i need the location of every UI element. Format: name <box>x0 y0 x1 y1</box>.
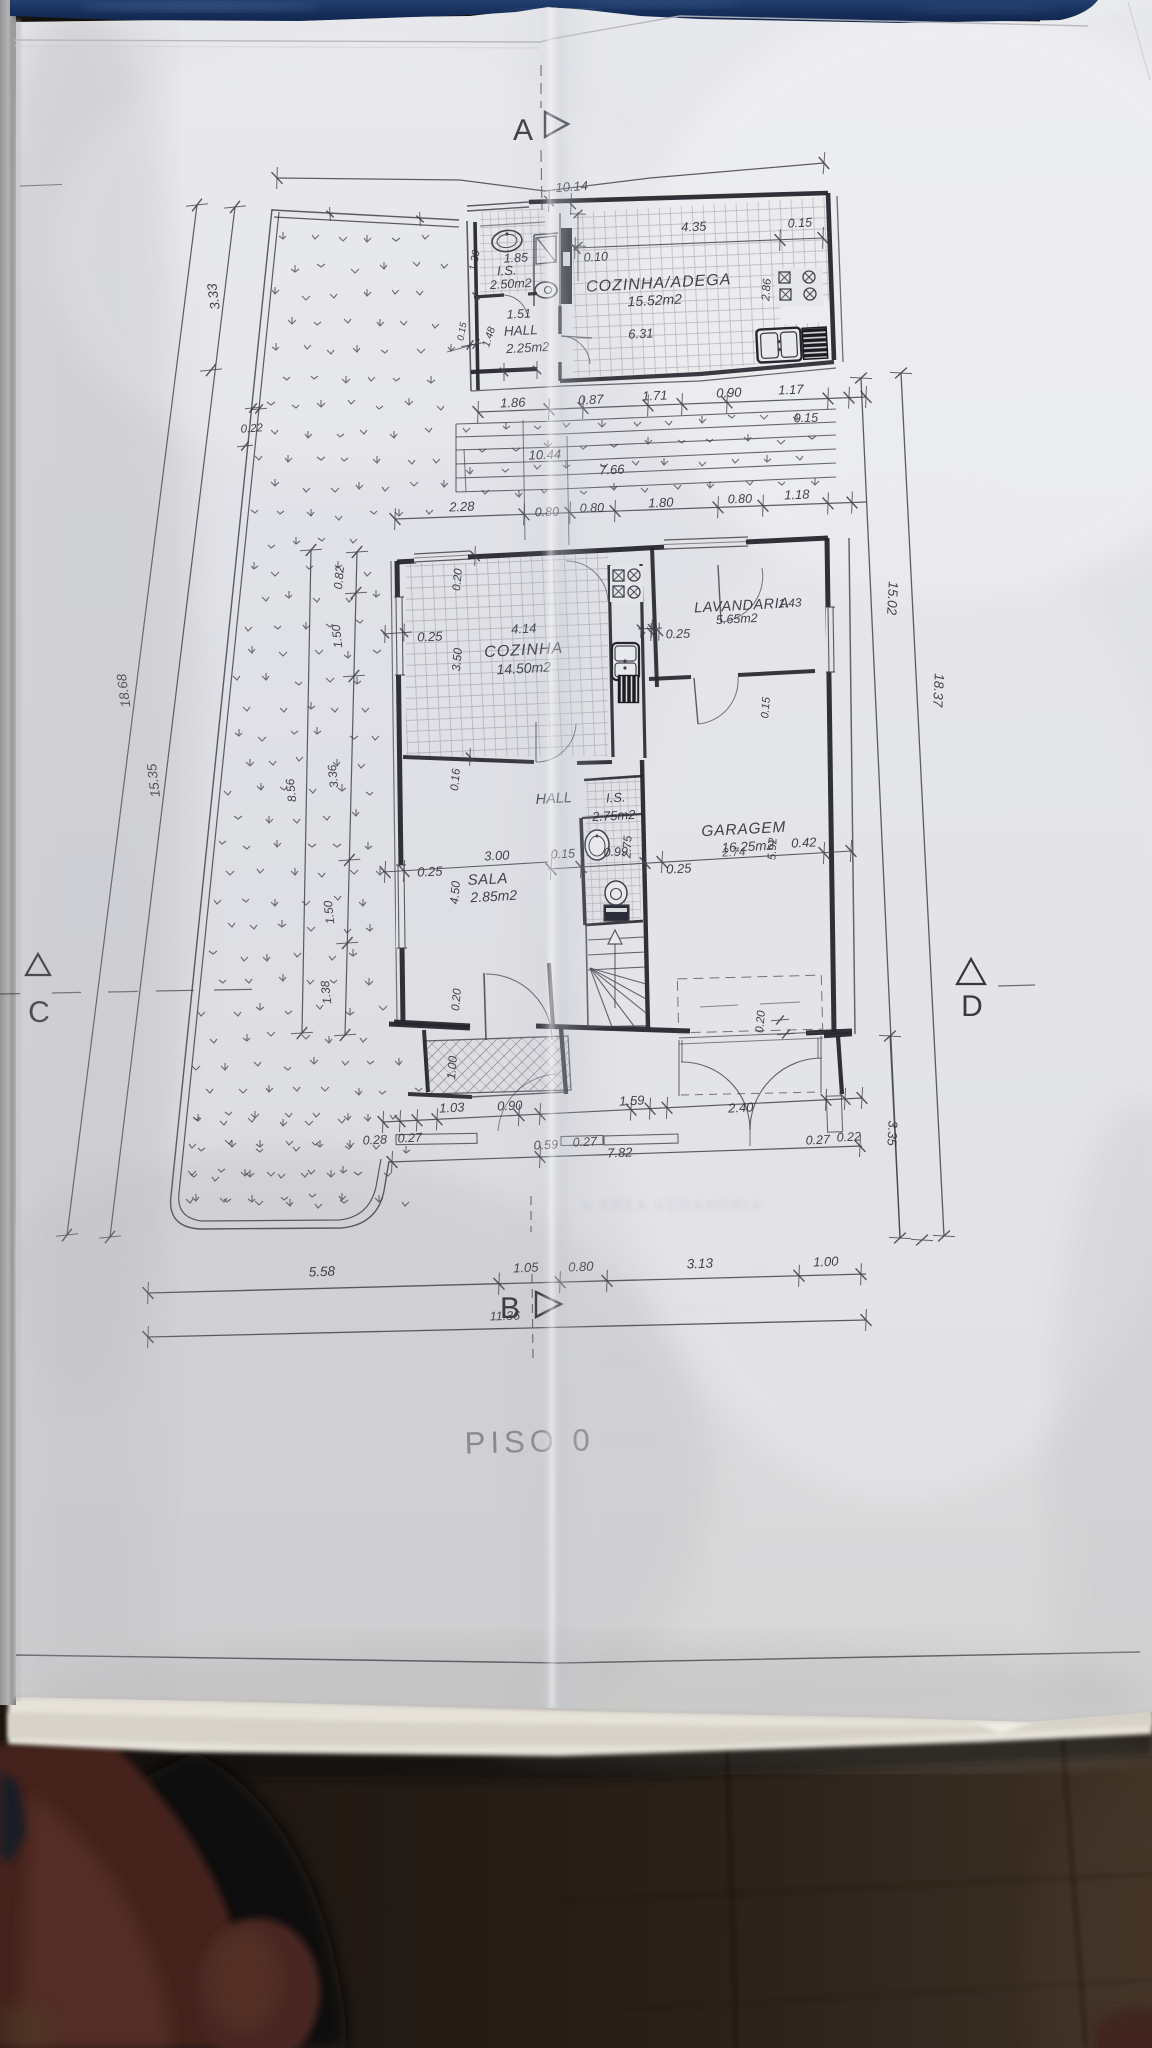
svg-text:0.82: 0.82 <box>331 565 347 590</box>
svg-text:2.40: 2.40 <box>727 1099 755 1115</box>
svg-text:1.50: 1.50 <box>321 900 337 925</box>
svg-text:7.82: 7.82 <box>607 1144 634 1160</box>
svg-text:1.50: 1.50 <box>329 624 345 649</box>
svg-text:5.65m2: 5.65m2 <box>716 611 758 627</box>
svg-text:0.42: 0.42 <box>791 834 818 850</box>
svg-text:0.25: 0.25 <box>417 629 444 645</box>
svg-text:2.75: 2.75 <box>621 835 634 860</box>
svg-text:0.20: 0.20 <box>754 1009 768 1033</box>
svg-text:1.71: 1.71 <box>642 388 668 404</box>
svg-text:3.50: 3.50 <box>449 647 465 672</box>
svg-text:0.22: 0.22 <box>240 422 264 436</box>
svg-text:0.25: 0.25 <box>417 864 444 880</box>
svg-text:1.00: 1.00 <box>444 1055 460 1080</box>
svg-text:0.20: 0.20 <box>450 987 464 1011</box>
svg-text:4.35: 4.35 <box>681 218 708 234</box>
svg-text:3.35: 3.35 <box>884 1120 900 1147</box>
svg-text:5.58: 5.58 <box>308 1264 335 1280</box>
svg-text:1.18: 1.18 <box>784 487 811 503</box>
svg-text:4.50: 4.50 <box>447 880 463 905</box>
svg-text:A AREA ADRAHORIA: A AREA ADRAHORIA <box>580 1197 763 1214</box>
svg-text:3.36: 3.36 <box>325 764 341 789</box>
svg-text:0.15: 0.15 <box>759 696 773 719</box>
svg-text:xxxxxxx: xxxxxxx <box>601 1355 643 1369</box>
svg-text:0.28: 0.28 <box>362 1132 387 1147</box>
svg-text:0.15: 0.15 <box>787 215 812 230</box>
svg-text:D: D <box>961 990 983 1023</box>
svg-text:1.59: 1.59 <box>619 1092 645 1108</box>
svg-text:1.38: 1.38 <box>318 980 334 1005</box>
svg-text:1.43: 1.43 <box>778 595 802 610</box>
svg-text:2.86: 2.86 <box>760 278 774 303</box>
svg-text:3.13: 3.13 <box>686 1256 713 1272</box>
svg-text:1.00: 1.00 <box>813 1254 840 1270</box>
svg-text:1.03: 1.03 <box>439 1099 466 1115</box>
svg-text:xxx: xxx <box>751 1261 769 1275</box>
svg-text:5.92: 5.92 <box>766 837 779 861</box>
svg-text:0.16: 0.16 <box>449 767 463 791</box>
svg-text:0.27: 0.27 <box>805 1132 831 1147</box>
svg-text:0.90: 0.90 <box>716 385 743 401</box>
svg-text:15.52m2: 15.52m2 <box>627 291 682 310</box>
svg-text:0.20: 0.20 <box>451 567 465 591</box>
svg-text:1.80: 1.80 <box>648 495 675 511</box>
svg-text:0.80: 0.80 <box>727 492 752 507</box>
svg-text:6.31: 6.31 <box>628 325 654 341</box>
svg-text:xxxx xxxx: xxxx xxxx <box>599 1433 650 1447</box>
svg-text:0.27: 0.27 <box>397 1130 423 1145</box>
svg-text:18.37: 18.37 <box>930 673 947 708</box>
svg-text:I.S.: I.S. <box>606 790 626 806</box>
svg-text:0.25: 0.25 <box>665 627 690 642</box>
svg-text:0.25: 0.25 <box>666 860 693 876</box>
svg-text:xxxxx xx: xxxxx xx <box>682 1301 727 1315</box>
svg-text:2.28: 2.28 <box>448 499 476 515</box>
svg-text:15.02: 15.02 <box>884 581 901 616</box>
svg-text:8.56: 8.56 <box>283 778 299 803</box>
svg-text:2.74: 2.74 <box>721 844 746 859</box>
svg-text:1.17: 1.17 <box>778 382 805 398</box>
